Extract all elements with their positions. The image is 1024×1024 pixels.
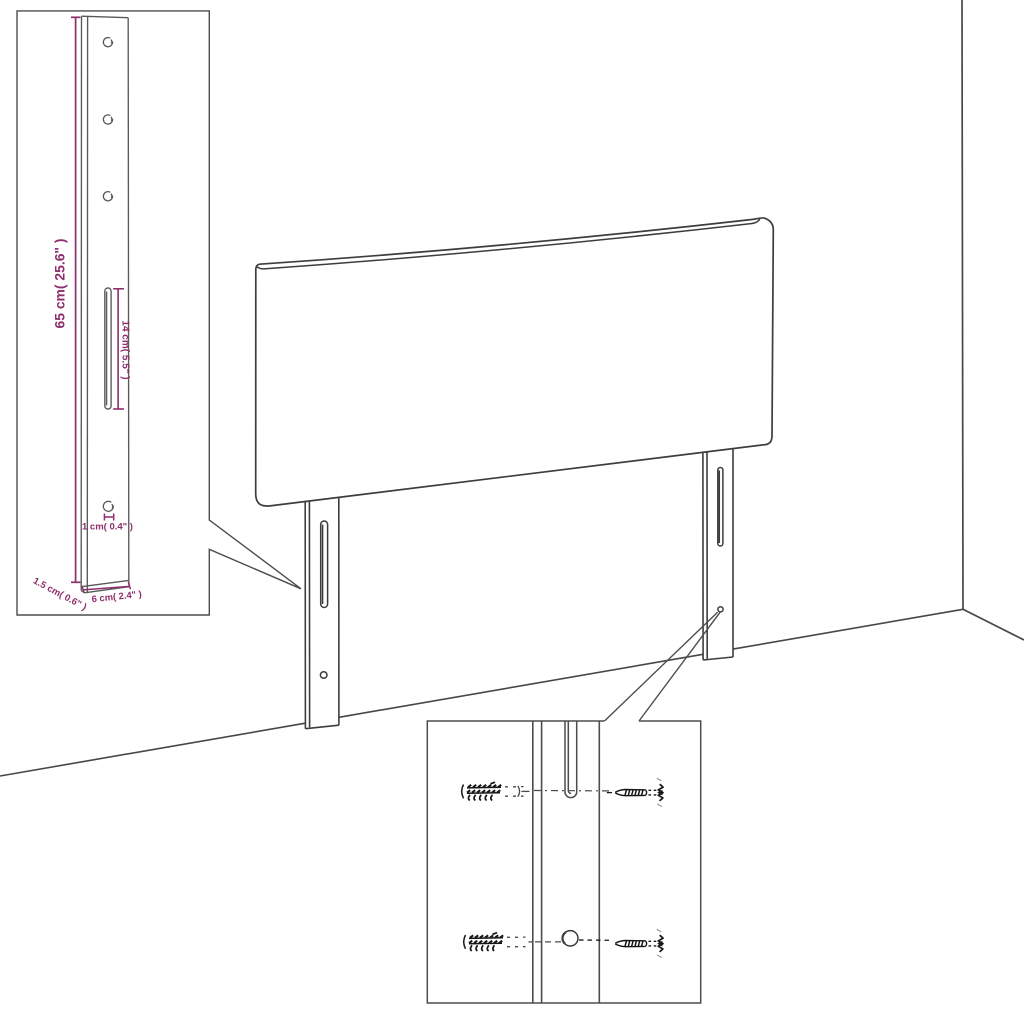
svg-text:14 cm( 5.5" ): 14 cm( 5.5" ) <box>119 320 130 379</box>
svg-text:65 cm( 25.6" ): 65 cm( 25.6" ) <box>52 239 68 329</box>
svg-text:1 cm( 0.4" ): 1 cm( 0.4" ) <box>82 522 133 533</box>
